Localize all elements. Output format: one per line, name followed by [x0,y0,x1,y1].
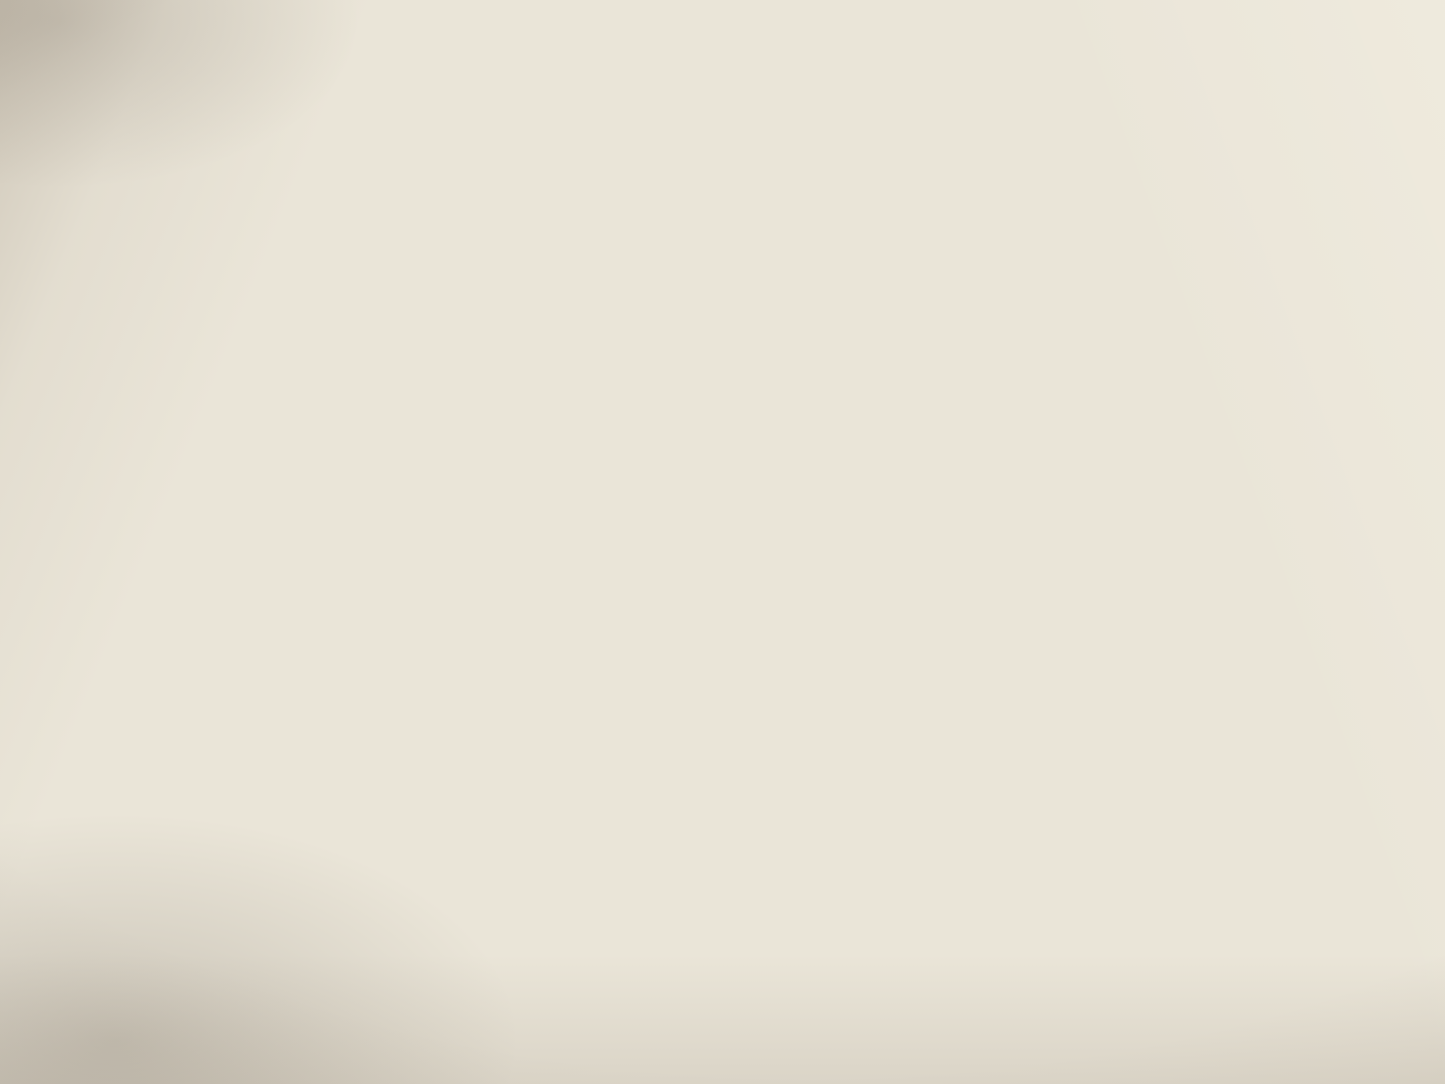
map-labels-layer [0,0,1445,1084]
map-canvas [0,0,1445,1084]
